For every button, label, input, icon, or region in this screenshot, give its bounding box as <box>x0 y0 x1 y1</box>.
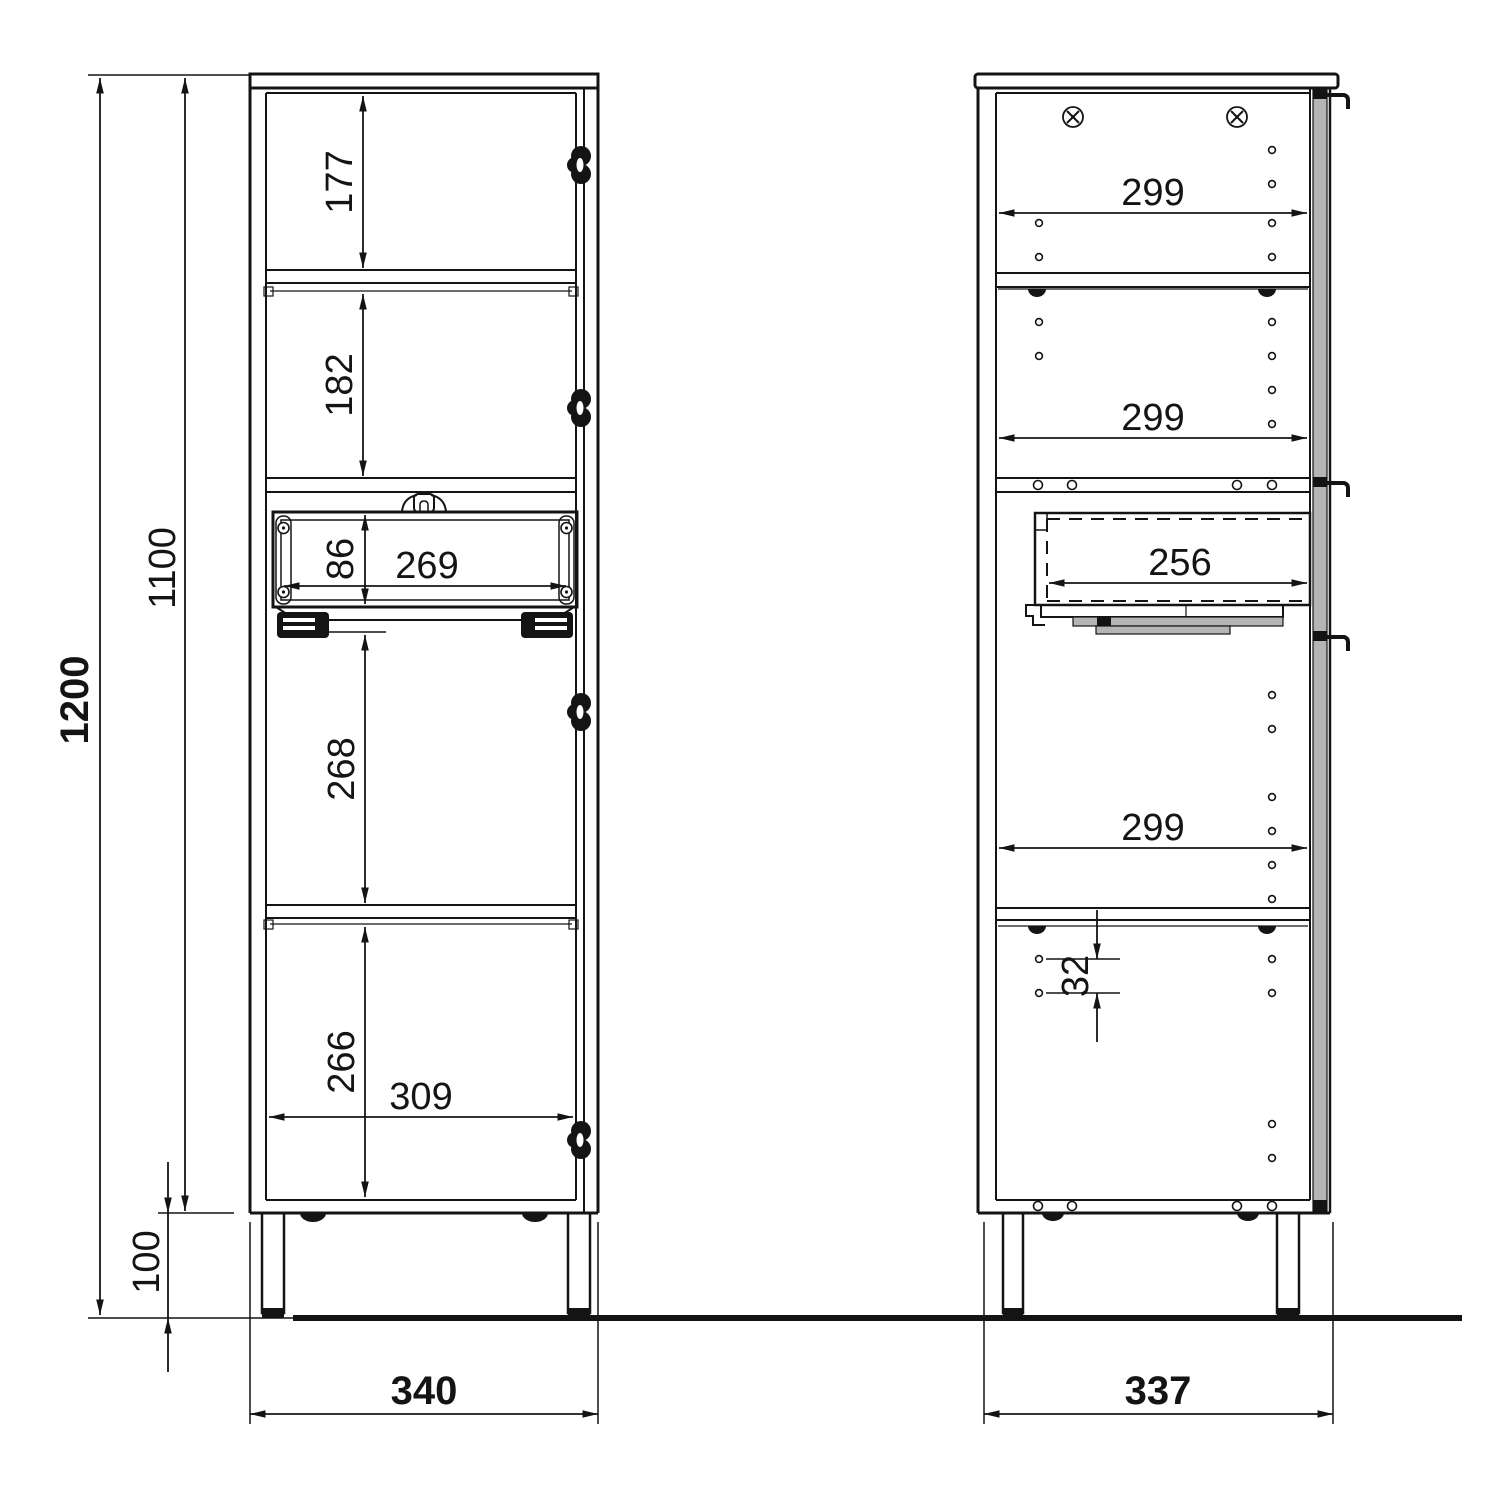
technical-drawing-page: 1200 1100 100 <box>0 0 1500 1500</box>
dim-label: 32 <box>1055 955 1097 997</box>
dim-label: 177 <box>319 150 361 213</box>
cabinet-dimension-drawing: 1200 1100 100 <box>0 0 1500 1500</box>
dim-lower-depth: 299 <box>999 807 1307 849</box>
shelf-pin-icon <box>1258 926 1276 934</box>
front-legs <box>262 1213 590 1318</box>
shelf-pin-icon <box>1028 289 1046 297</box>
side-top-panel <box>975 74 1338 88</box>
dim-label: 340 <box>391 1369 458 1413</box>
dim-total-height: 1200 <box>53 78 100 1315</box>
dim-top-depth: 299 <box>999 172 1307 214</box>
dim-label: 337 <box>1125 1369 1192 1413</box>
dim-label: 86 <box>320 538 362 580</box>
drawer-slide-icon <box>521 612 573 638</box>
leg-mount-icon <box>300 1213 326 1222</box>
side-drawer-divider <box>996 478 1310 492</box>
dim-second-compartment: 182 <box>319 294 363 476</box>
drawer-handle-icon <box>402 494 446 512</box>
dim-interior-width: 309 <box>269 1076 573 1118</box>
screw-icon <box>1227 107 1247 127</box>
drawer-slide-icon <box>277 612 329 638</box>
hinge-cup-icon <box>567 389 591 427</box>
front-top-panel <box>250 74 598 88</box>
side-shelf-1 <box>996 273 1310 297</box>
drawer-slide-section <box>1026 605 1283 634</box>
hinge-cup-icon <box>567 693 591 731</box>
dim-body-height: 1100 <box>142 78 234 1213</box>
dim-label: 299 <box>1121 172 1184 214</box>
dim-drawer-depth: 256 <box>1049 542 1307 584</box>
cabinet-leg <box>1277 1213 1299 1313</box>
screw-hole-icon <box>1034 481 1043 490</box>
dim-label: 269 <box>395 545 458 587</box>
dim-leg-height: 100 <box>126 1162 168 1372</box>
cabinet-leg <box>568 1213 590 1313</box>
hinge-cup-icons <box>567 146 591 1159</box>
screw-hole-icon <box>1068 1202 1077 1211</box>
screw-hole-icon <box>1068 481 1077 490</box>
screw-hole-icon <box>1233 1202 1242 1211</box>
mount-screw-icons <box>1063 107 1247 127</box>
dim-third-compartment: 268 <box>321 635 365 903</box>
side-door-edge <box>1313 88 1348 1213</box>
leg-mount-icon <box>522 1213 548 1222</box>
cabinet-leg <box>1003 1213 1023 1313</box>
screw-hole-icon <box>1034 1202 1043 1211</box>
side-view: 299 299 256 299 32 337 <box>975 74 1348 1424</box>
dim-middle-depth: 299 <box>999 397 1307 439</box>
screw-icon <box>1063 107 1083 127</box>
dim-overall-depth: 337 <box>984 1222 1333 1424</box>
dim-leg-height-label: 100 <box>126 1230 168 1293</box>
screw-hole-icon <box>1268 1202 1277 1211</box>
hinge-cup-icon <box>567 146 591 184</box>
dim-label: 256 <box>1148 542 1211 584</box>
dim-bottom-compartment: 266 <box>321 927 365 1197</box>
hinge-cup-icon <box>567 1121 591 1159</box>
dim-overall-width: 340 <box>250 1222 598 1424</box>
side-legs <box>1003 1202 1299 1319</box>
dim-label: 266 <box>321 1030 363 1093</box>
dim-total-height-label: 1200 <box>53 656 97 745</box>
overall-dimensions: 1200 1100 100 <box>53 75 250 1372</box>
shelf-pin-icon <box>1028 926 1046 934</box>
dim-label: 309 <box>389 1076 452 1118</box>
dim-label: 299 <box>1121 807 1184 849</box>
front-drawer-divider <box>266 478 576 492</box>
front-shelf-1 <box>264 270 578 296</box>
leg-mount-icon <box>1042 1213 1064 1221</box>
dim-hole-pitch: 32 <box>1046 910 1120 1042</box>
leg-mount-icon <box>1237 1213 1259 1221</box>
front-shelf-2 <box>264 905 578 929</box>
dim-label: 268 <box>321 737 363 800</box>
shelf-pin-icon <box>1258 289 1276 297</box>
screw-hole-icon <box>1268 481 1277 490</box>
dim-top-compartment: 177 <box>319 96 363 268</box>
shelf-pin-holes-right-column <box>1269 147 1276 1162</box>
dim-drawer-opening-height: 86 <box>320 515 365 604</box>
dim-label: 299 <box>1121 397 1184 439</box>
screw-hole-icon <box>1233 481 1242 490</box>
front-view: 177 182 86 269 268 266 309 <box>250 74 598 1424</box>
cabinet-leg <box>262 1213 284 1313</box>
side-shelf-2 <box>996 908 1310 934</box>
dim-body-height-label: 1100 <box>142 527 184 609</box>
dim-label: 182 <box>319 353 361 416</box>
